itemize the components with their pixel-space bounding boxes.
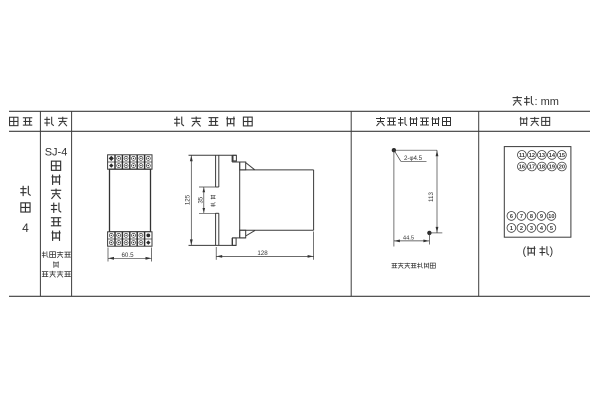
- svg-text:11: 11: [519, 153, 525, 159]
- svg-text:3: 3: [530, 226, 533, 232]
- svg-text:9: 9: [540, 214, 543, 220]
- svg-text:15: 15: [559, 153, 565, 159]
- svg-text:10: 10: [548, 214, 554, 220]
- svg-text:4: 4: [22, 221, 29, 235]
- svg-text:14: 14: [549, 153, 556, 159]
- svg-text:13: 13: [539, 153, 545, 159]
- svg-text:44.5: 44.5: [403, 235, 414, 241]
- svg-text:2-φ4.5: 2-φ4.5: [404, 155, 423, 162]
- svg-text:35: 35: [198, 196, 204, 203]
- svg-text:SJ-4: SJ-4: [45, 147, 68, 159]
- svg-text:(: (: [523, 246, 527, 258]
- svg-text:125: 125: [184, 194, 191, 205]
- svg-text:18: 18: [539, 165, 545, 171]
- svg-text:6: 6: [510, 214, 513, 220]
- svg-text:12: 12: [529, 153, 535, 159]
- svg-text:113: 113: [428, 192, 435, 202]
- svg-text:60.5: 60.5: [121, 252, 134, 259]
- svg-text:17: 17: [529, 165, 535, 171]
- svg-text:7: 7: [520, 214, 523, 220]
- svg-text:8: 8: [530, 214, 533, 220]
- svg-text:): ): [550, 246, 554, 258]
- svg-text:1: 1: [510, 226, 513, 232]
- svg-text:16: 16: [519, 165, 525, 171]
- svg-text:128: 128: [257, 250, 268, 257]
- svg-text:2: 2: [520, 226, 523, 232]
- svg-text:: mm: : mm: [535, 96, 559, 108]
- svg-text:5: 5: [550, 226, 553, 232]
- svg-text:19: 19: [549, 165, 555, 171]
- svg-text:20: 20: [559, 165, 565, 171]
